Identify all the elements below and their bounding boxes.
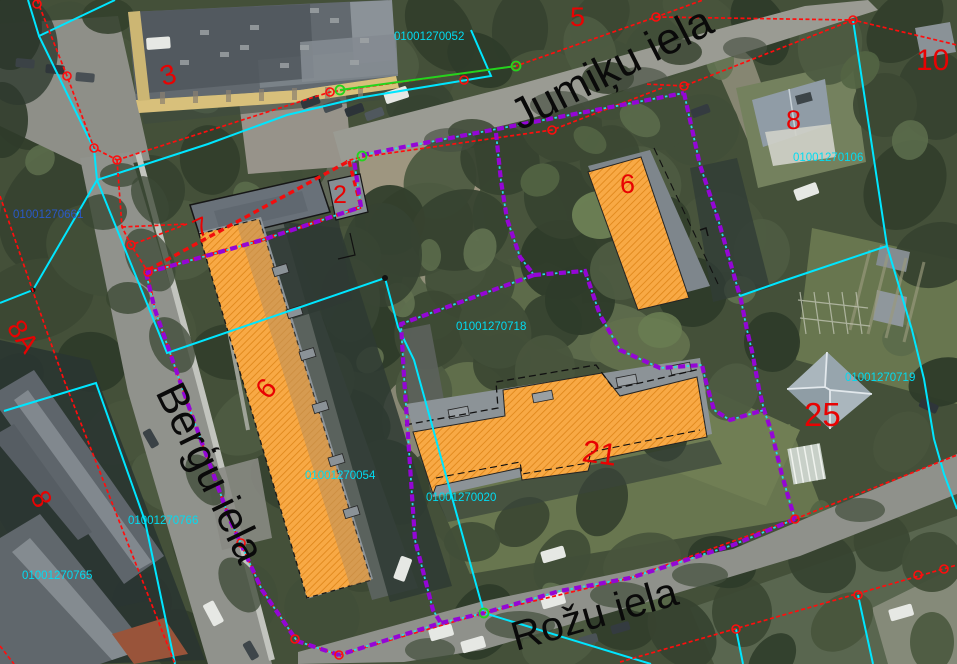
svg-text:01001270106: 01001270106 bbox=[793, 152, 863, 164]
svg-text:01001270765: 01001270765 bbox=[22, 570, 92, 582]
svg-text:5: 5 bbox=[570, 2, 585, 32]
svg-text:8: 8 bbox=[786, 105, 801, 135]
svg-text:10: 10 bbox=[916, 44, 949, 77]
svg-text:21: 21 bbox=[580, 433, 619, 472]
svg-text:01001270054: 01001270054 bbox=[305, 470, 376, 482]
svg-text:01001270718: 01001270718 bbox=[456, 321, 526, 333]
svg-text:6: 6 bbox=[620, 169, 635, 199]
svg-text:01001270766: 01001270766 bbox=[128, 515, 198, 527]
svg-text:2: 2 bbox=[333, 181, 347, 209]
svg-text:01001270020: 01001270020 bbox=[426, 492, 496, 504]
svg-text:01001270719: 01001270719 bbox=[845, 372, 915, 384]
svg-text:25: 25 bbox=[804, 396, 841, 433]
svg-text:01001270052: 01001270052 bbox=[394, 31, 464, 43]
svg-text:01001270661: 01001270661 bbox=[13, 209, 83, 221]
